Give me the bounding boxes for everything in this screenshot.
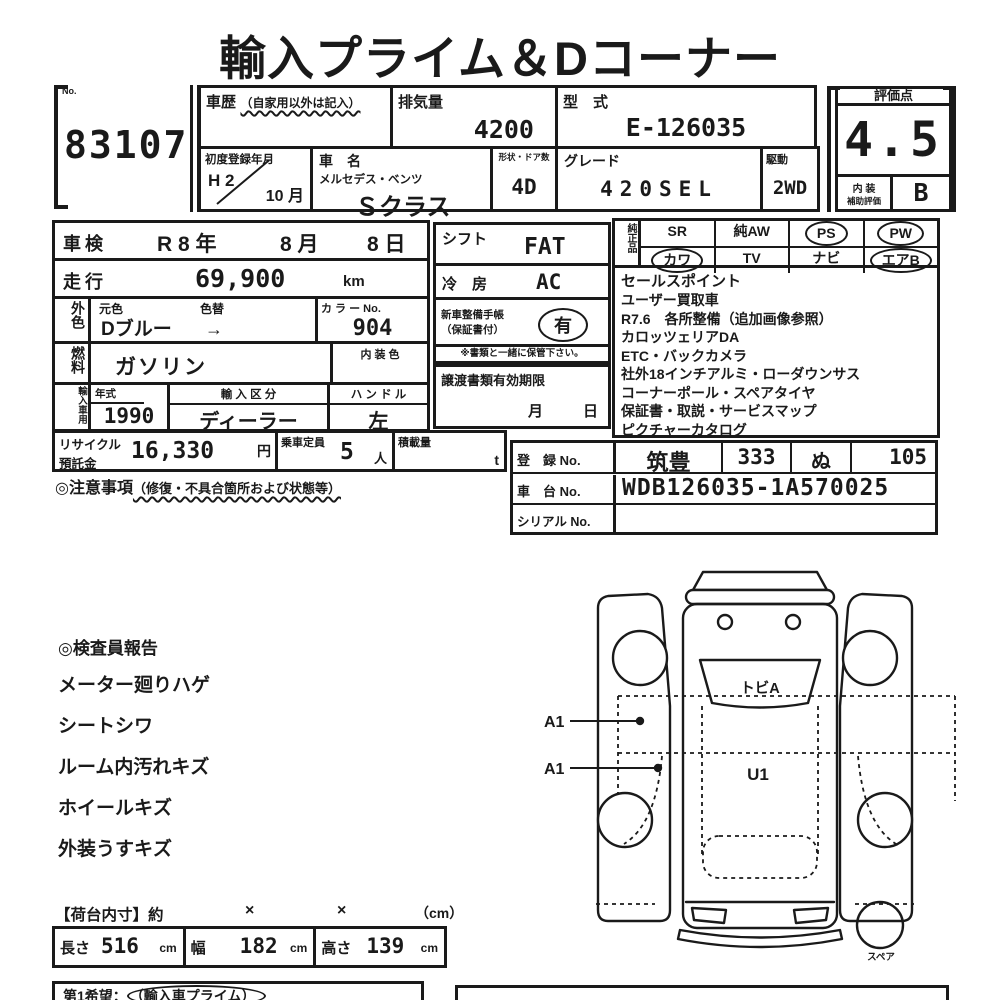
handle-label: ハ ン ド ル — [330, 385, 427, 405]
shift-box: シフト FAT — [433, 222, 611, 266]
lot-bracket — [54, 85, 58, 209]
recycle-unit: 円 — [257, 441, 271, 461]
cargo-dims-header: 【荷台内寸】約 — [55, 903, 164, 925]
damage-code-a1-second: A1 — [544, 761, 565, 778]
ac-value: AC — [536, 270, 561, 294]
capacity-unit: 人 — [374, 448, 387, 467]
score-value-cell: 4.5 — [835, 103, 952, 177]
capacity-value: 5 — [340, 439, 354, 465]
grade-value: 420SEL — [564, 177, 754, 201]
interior-color-label: 内 装 色 — [333, 344, 427, 362]
hood-dot-right — [786, 615, 800, 629]
height-value: 139 — [366, 934, 404, 958]
body-doors-cell: 形状・ドア数 4D — [490, 146, 558, 212]
color-change-label: 色替 — [200, 300, 224, 317]
inspector-item: ルーム内汚れキズ — [58, 752, 418, 779]
drive-cell: 駆動 2WD — [760, 146, 820, 212]
car-name-label: 車 名 — [319, 153, 361, 169]
lot-no-label: No. — [62, 86, 77, 96]
times-sign-1: × — [245, 902, 254, 920]
shaken-month: 8 月 — [280, 228, 319, 258]
mileage-unit: km — [343, 273, 365, 290]
booklet-label-line2: （保証書付） — [441, 322, 504, 337]
score-bracket-right — [952, 86, 956, 212]
sales-points-label: セールスポイント — [621, 270, 931, 291]
sales-point-item: ETC・バックカメラ — [621, 347, 931, 366]
first-registration-cell: 初度登録年月 H 2 10 月 — [198, 146, 313, 212]
load-cell: 積載量 t — [392, 433, 504, 469]
equip-cell-aw: 純AW — [714, 221, 789, 246]
inspector-item: 外装うすキズ — [58, 834, 418, 861]
width-value: 182 — [240, 934, 278, 958]
equip-cell-sr: SR — [641, 221, 714, 246]
import-type-cell: 輸 入 区 分 ディーラー — [167, 385, 327, 429]
ac-label: 冷 房 — [442, 273, 487, 294]
length-value: 516 — [101, 934, 139, 958]
serial-value — [613, 505, 935, 532]
interior-color-cell: 内 装 色 — [330, 344, 427, 382]
spare-tire — [857, 902, 903, 948]
transfer-month: 月 — [528, 400, 543, 421]
caution-line: ◎注意事項（修復・不具合箇所および状態等） — [55, 474, 341, 498]
displacement-cell: 排気量 4200 — [390, 85, 558, 149]
import-row: 輸入車用 年式 1990 輸 入 区 分 ディーラー ハ ン ド ル 左 — [55, 385, 427, 429]
booklet-box: 新車整備手帳 （保証書付） 有 — [433, 297, 611, 347]
mileage-row: 走行 69,900 km — [55, 261, 427, 299]
lot-number: 83107 — [64, 123, 188, 167]
front-bumper — [686, 590, 834, 604]
year-cell: 年式 1990 — [91, 385, 167, 429]
first-registration-month: 10 月 — [266, 182, 304, 206]
mileage-label: 走行 — [63, 268, 107, 294]
booklet-label-line1: 新車整備手帳 — [441, 307, 504, 322]
shaken-year: R 8 年 — [157, 228, 217, 258]
equip-sr: SR — [668, 223, 687, 239]
damage-code-roof: U1 — [747, 765, 769, 784]
rear-left-wheel — [598, 793, 652, 847]
auction-sheet: 輸入プライム＆Dコーナー No. 83107 車歴 （自家用以外は記入） 排気量… — [0, 0, 1000, 1000]
recycle-label-line1: リサイクル — [59, 434, 121, 453]
chassis-label: 車 台 No. — [517, 481, 581, 500]
serial-label: シリアル No. — [517, 511, 590, 530]
shift-label: シフト — [442, 228, 487, 249]
registration-row: 登 録 No. 筑豊 333 ぬ 105 — [513, 443, 935, 474]
recycle-value: 16,330 — [131, 438, 214, 464]
model-code-value: E-126035 — [563, 113, 809, 142]
registration-table: 登 録 No. 筑豊 333 ぬ 105 車 台 No. WDB126035-1… — [510, 440, 938, 535]
inspector-item: シートシワ — [58, 711, 418, 738]
car-diagram: A1 A1 トビA U1 スペア — [540, 556, 970, 968]
color-arrow: → — [205, 319, 223, 340]
color-value: Dブルー — [101, 314, 172, 341]
import-label: 輸入車用 — [55, 385, 91, 429]
caution-note: （修復・不具合箇所および状態等） — [133, 481, 341, 496]
equipment-label: 純正品 — [615, 221, 641, 265]
hood-dot-left — [718, 615, 732, 629]
shift-value: FAT — [524, 234, 566, 260]
page-title: 輸入プライム＆Dコーナー — [150, 20, 850, 89]
model-code-label: 型 式 — [563, 91, 809, 112]
car-maker: メルセデス・ベンツ — [319, 171, 484, 187]
width-label: 幅 — [191, 937, 206, 958]
first-registration-label: 初度登録年月 — [205, 151, 306, 167]
reg-number: 105 — [850, 443, 935, 472]
height-label: 高さ — [321, 937, 351, 958]
import-type-label: 輸 入 区 分 — [170, 385, 327, 405]
interior-label-line2: 補助評価 — [838, 195, 890, 207]
front-left-wheel — [613, 631, 667, 685]
history-label: 車歴 — [206, 94, 236, 111]
equip-navi: ナビ — [812, 250, 840, 266]
car-model: Ｓクラス — [319, 187, 484, 222]
inspector-report: ◎検査員報告 メーター廻りハゲ シートシワ ルーム内汚れキズ ホイールキズ 外装… — [58, 634, 418, 861]
grade-label: グレード — [564, 151, 754, 171]
rear-right-wheel — [858, 793, 912, 847]
sales-point-item: ピクチャーカタログ — [621, 421, 931, 440]
first-choice-box: 第1希望：（輸入車プライム） — [52, 981, 424, 1000]
tail-light-left — [692, 908, 726, 923]
damage-code-a1-first: A1 — [544, 714, 565, 731]
history-note: （自家用以外は記入） — [240, 96, 360, 110]
chassis-value: WDB126035-1A570025 — [613, 475, 935, 503]
sales-point-item: 社外18インチアルミ・ローダウンサス — [621, 365, 931, 384]
drive-value: 2WD — [766, 177, 814, 199]
transfer-box: 譲渡書類有効期限 月 日 — [433, 364, 611, 429]
shaken-label: 車検 — [63, 230, 107, 256]
color-no-label: カ ラ ー No. — [318, 299, 427, 316]
width-unit: cm — [290, 941, 307, 955]
grade-cell: グレード 420SEL — [555, 146, 763, 212]
cm-note: （cm） — [415, 903, 463, 923]
exterior-color-row: 外色 元色 色替 Dブルー → カ ラ ー No. 904 — [55, 299, 427, 344]
body-doors-value: 4D — [495, 175, 553, 199]
rear-bumper — [678, 930, 842, 947]
capacity-cell: 乗車定員 5 人 — [275, 433, 392, 469]
inspector-item: メーター廻りハゲ — [58, 670, 418, 697]
length-cell: 長さ 516 cm — [55, 929, 183, 965]
sales-point-item: 保証書・取説・サービスマップ — [621, 402, 931, 421]
fuel-value: ガソリン — [115, 351, 207, 381]
reg-no-label: 登 録 No. — [517, 450, 581, 469]
sales-points-box: セールスポイント ユーザー買取車 R7.6 各所整備（追加画像参照） カロッツェ… — [612, 265, 940, 438]
tail-light-right — [794, 908, 828, 923]
equip-cell-ps: PS — [788, 221, 863, 246]
cargo-dims-table: 長さ 516 cm 幅 182 cm 高さ 139 cm — [52, 926, 447, 968]
sales-point-item: カロッツェリアDA — [621, 328, 931, 347]
front-bumper-top — [693, 572, 827, 590]
sales-point-item: ユーザー買取車 — [621, 291, 931, 310]
year-label: 年式 — [91, 385, 144, 404]
ac-box: 冷 房 AC — [433, 263, 611, 300]
color-no-cell: カ ラ ー No. 904 — [315, 299, 427, 341]
caution-label: ◎注意事項 — [55, 480, 133, 497]
load-label: 積載量 — [395, 433, 504, 451]
recycle-cell: リサイクル 預託金 16,330 円 — [55, 433, 275, 469]
handle-cell: ハ ン ド ル 左 — [327, 385, 427, 429]
sales-point-item: コーナーポール・スペアタイヤ — [621, 384, 931, 403]
shaken-row: 車検 R 8 年 8 月 8 日 — [55, 223, 427, 261]
chassis-row: 車 台 No. WDB126035-1A570025 — [513, 474, 935, 505]
lot-number-box: No. 83107 — [52, 85, 192, 209]
length-label: 長さ — [60, 937, 90, 958]
recycle-row: リサイクル 預託金 16,330 円 乗車定員 5 人 積載量 t — [52, 430, 507, 472]
fuel-row: 燃料 ガソリン 内 装 色 — [55, 344, 427, 385]
booklet-note: ※書類と一緒に保管下さい。 — [433, 344, 611, 364]
displacement-value: 4200 — [398, 115, 550, 144]
equip-cell-pw: PW — [863, 221, 938, 246]
equip-tv: TV — [743, 250, 761, 266]
first-choice-value: （輸入車プライム） — [127, 985, 266, 1000]
reg-kana: ぬ — [790, 443, 850, 472]
first-choice-label: 第1希望： — [63, 988, 127, 1000]
displacement-label: 排気量 — [398, 91, 550, 112]
interior-label-cell: 内 装 補助評価 — [838, 177, 893, 209]
interior-label-line1: 内 装 — [838, 180, 890, 195]
booklet-value: 有 — [538, 308, 588, 342]
exterior-color-label: 外色 — [55, 299, 91, 341]
height-unit: cm — [421, 941, 438, 955]
model-code-cell: 型 式 E-126035 — [555, 85, 817, 149]
sales-point-item: R7.6 各所整備（追加画像参照） — [621, 310, 931, 329]
mileage-value: 69,900 — [195, 264, 285, 293]
main-left-table: 車検 R 8 年 8 月 8 日 走行 69,900 km 外色 元色 色替 D… — [52, 220, 430, 432]
spare-label: スペア — [867, 952, 895, 963]
length-unit: cm — [159, 941, 176, 955]
damage-code-windshield: トビA — [740, 680, 780, 697]
equip-pw: PW — [877, 221, 924, 246]
inspector-heading: ◎検査員報告 — [58, 634, 418, 659]
height-cell: 高さ 139 cm — [313, 929, 444, 965]
interior-score-row: 内 装 補助評価 B — [835, 174, 952, 212]
first-registration-year: H 2 — [208, 171, 234, 191]
year-value: 1990 — [91, 404, 167, 428]
drive-label: 駆動 — [766, 151, 814, 167]
front-right-wheel — [843, 631, 897, 685]
shaken-day: 8 日 — [367, 228, 406, 258]
reg-class: 333 — [721, 443, 790, 472]
equip-ps: PS — [805, 221, 848, 246]
load-unit: t — [494, 452, 499, 468]
serial-row: シリアル No. — [513, 505, 935, 532]
color-no-value: 904 — [318, 316, 427, 341]
lot-bracket-tick-bottom — [54, 205, 68, 209]
transfer-label: 譲渡書類有効期限 — [436, 367, 608, 392]
width-cell: 幅 182 cm — [183, 929, 314, 965]
equipment-table: 純正品 SR 純AW PS PW カワ TV ナビ エアB — [612, 218, 940, 268]
fuel-label: 燃料 — [55, 344, 91, 382]
interior-score-value: B — [893, 177, 949, 209]
bottom-right-box — [455, 985, 949, 1000]
reg-area: 筑豊 — [613, 443, 721, 472]
transfer-day: 日 — [583, 400, 598, 421]
history-cell: 車歴 （自家用以外は記入） — [198, 85, 393, 149]
car-name-cell: 車 名 メルセデス・ベンツ Ｓクラス — [310, 146, 493, 212]
inspector-item: ホイールキズ — [58, 793, 418, 820]
times-sign-2: × — [337, 902, 346, 920]
recycle-label-line2: 預託金 — [59, 453, 121, 472]
equip-aw: 純AW — [733, 223, 770, 239]
score-bracket-left — [827, 86, 831, 212]
body-doors-label: 形状・ドア数 — [495, 151, 553, 163]
